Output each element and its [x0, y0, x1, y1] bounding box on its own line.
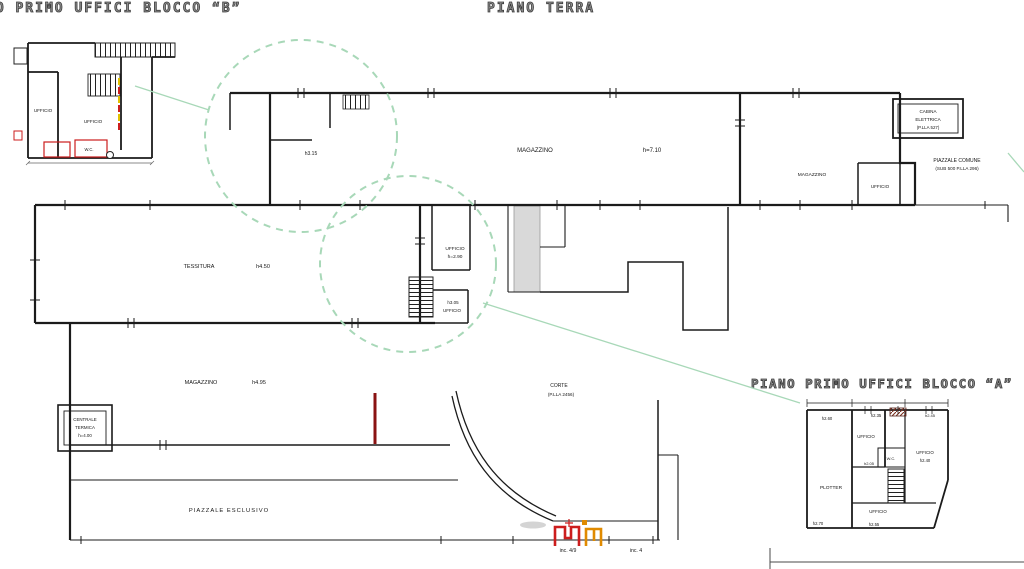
centrale-termica-line3: h=4.00	[78, 433, 92, 438]
floor-plan-drawing: UFFICIO UFFICIO W.C. MAGAZZINO h=7.10 h3…	[0, 0, 1024, 569]
piazzale-comune-line2: (SUB 500 P.LLA 296)	[935, 166, 979, 171]
block-a-ufficio-bottom-label: UFFICIO	[869, 509, 887, 514]
block-a-ufficio-right-label: UFFICIO	[916, 450, 934, 455]
sheet-corner-lines	[770, 548, 1024, 569]
gate-left-label: inc. 4/9	[560, 548, 577, 554]
tessitura-height: h4.50	[256, 264, 270, 270]
sheet-border	[770, 548, 1024, 569]
block-b-wc-label: W.C.	[84, 147, 93, 152]
block-b-walls	[28, 43, 175, 158]
block-a-plan: h2.60 h2.35 h2.45 UFFICIO W.C. h2.05 UFF…	[807, 399, 948, 528]
block-b-dimension-line	[26, 161, 154, 165]
block-a-h205: h2.05	[864, 461, 875, 466]
piano-terra-plan: MAGAZZINO h=7.10 h3.15 TESSITURA h4.50 U…	[30, 88, 1008, 554]
leader-line-block-a	[483, 303, 800, 403]
block-b-red-room-1	[44, 142, 70, 157]
piano-terra-courtyard-curve	[452, 391, 556, 521]
block-a-plotter-label: PLOTTER	[820, 485, 843, 491]
door-window-ticks	[30, 88, 989, 544]
tessitura-label: TESSITURA	[184, 264, 215, 270]
block-a-h270: h2.70	[813, 521, 824, 526]
leader-line-block-b	[135, 86, 209, 110]
block-b-ufficio-right-label: UFFICIO	[84, 119, 103, 124]
block-a-ufficio-top-label: UFFICIO	[857, 434, 875, 439]
block-b-plan: UFFICIO UFFICIO W.C.	[14, 43, 175, 165]
magazzino-low-height: h4.95	[252, 380, 266, 386]
corte-label: CORTE	[550, 383, 568, 389]
gate-symbol-red	[555, 527, 579, 546]
piano-terra-shaft	[514, 206, 540, 292]
block-b-red-mark	[14, 131, 22, 140]
block-a-ticks	[807, 399, 948, 414]
piazzale-label: PIAZZALE ESCLUSIVO	[189, 508, 269, 514]
block-b-ufficio-left-label: UFFICIO	[34, 108, 53, 113]
magazzino-low-label: MAGAZZINO	[185, 380, 218, 386]
ufficio-right-label: UFFICIO	[871, 184, 890, 189]
block-a-h255: h2.55	[869, 522, 880, 527]
magazzino-right-label: MAGAZZINO	[798, 172, 827, 178]
cabina-line2: ELETTRICA	[915, 117, 941, 122]
block-a-h235: h2.35	[871, 413, 882, 418]
block-a-h240: h2.40	[920, 458, 931, 463]
gate-symbol-orange	[586, 529, 601, 546]
block-a-stair	[888, 469, 904, 503]
centrale-termica-line1: CENTRALE	[73, 417, 96, 422]
block-a-h245: h2.45	[925, 413, 936, 418]
gray-smudge	[520, 522, 546, 529]
block-a-wc-label: W.C.	[887, 456, 896, 461]
gate-right-label: inc. 4	[630, 548, 643, 554]
leader-line-right-edge	[1008, 153, 1024, 172]
block-b-stair	[88, 74, 120, 96]
ufficio-small-label: UFFICIO	[443, 308, 461, 313]
piano-terra-stair-small	[343, 95, 369, 109]
block-b-column-marker	[107, 152, 114, 159]
magazzino-top-label: MAGAZZINO	[517, 148, 553, 154]
ufficio-center-label: UFFICIO	[445, 246, 464, 252]
gate-orange-mark	[582, 520, 587, 525]
ufficio-center-height: h=2.90	[448, 254, 463, 260]
piazzale-comune-line1: PIAZZALE COMUNE	[933, 158, 981, 164]
drawing-sheet: NO PRIMO UFFICI BLOCCO “B” PIANO TERRA P…	[0, 0, 1024, 569]
corte-parcel-label: (P.LLA 2456)	[548, 392, 575, 397]
magazzino-top-height: h=7.10	[643, 148, 662, 154]
detail-height-label: h3.15	[305, 151, 318, 157]
piano-terra-walls-main	[35, 93, 915, 540]
block-b-external-stair	[95, 43, 175, 57]
ufficio-small-height: h3.05	[447, 300, 459, 305]
centrale-termica-line2: TERMICA	[75, 425, 95, 430]
piano-terra-stair	[409, 277, 433, 317]
cabina-line3: (P.LLA 527)	[917, 125, 940, 130]
block-b-wing	[14, 48, 27, 64]
cabina-line1: CABINA	[919, 109, 937, 114]
piano-terra-walls-secondary	[70, 93, 900, 540]
highlight-circle-top	[205, 40, 397, 232]
block-a-h260: h2.60	[822, 416, 833, 421]
